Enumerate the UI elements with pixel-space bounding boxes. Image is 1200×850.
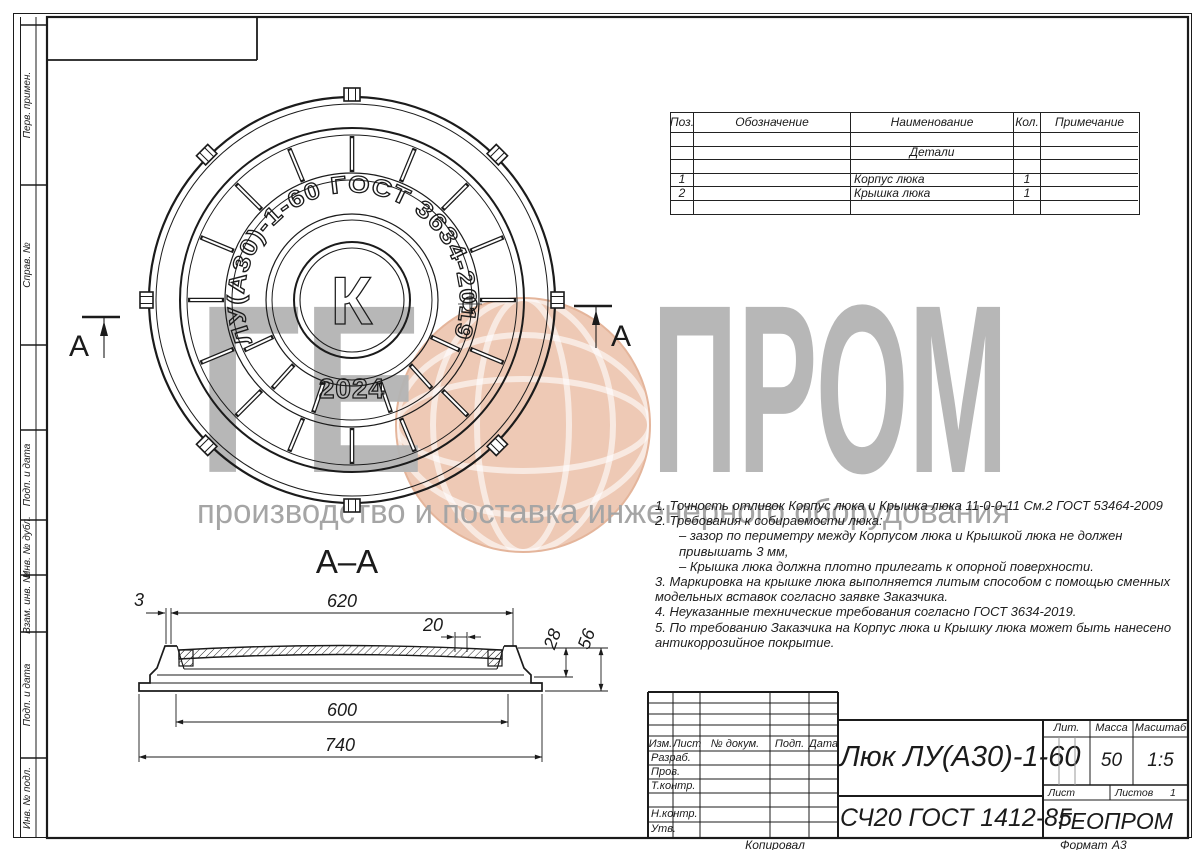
table-row: 1 <box>671 174 694 188</box>
parts-header-qty: Кол. <box>1014 113 1041 133</box>
cut-arrow-right <box>574 306 612 348</box>
note-line: 4. Неуказанные технические требования со… <box>655 604 1192 619</box>
note-line: 3. Маркировка на крышке люка выполняется… <box>655 574 1192 604</box>
technical-notes: 1. Точность отливок Корпус люка и Крышка… <box>655 498 1192 650</box>
dim-3: 3 <box>134 590 144 610</box>
dim-740: 740 <box>325 735 355 755</box>
part-name: Крышка люка <box>851 187 1014 201</box>
parts-header-note: Примечание <box>1041 113 1138 133</box>
dim-28: 28 <box>539 626 565 653</box>
table-row: 2 <box>671 187 694 201</box>
parts-header-pos: Поз. <box>671 113 694 133</box>
note-line: 2. Требования к собираемости люка: <box>655 513 1192 528</box>
dim-600: 600 <box>327 700 357 720</box>
dimension-lines <box>139 608 608 762</box>
part-qty: 1 <box>1014 187 1041 201</box>
drawing-sheet: ГЕ ПРОМ производство и поставка инженерн… <box>0 0 1200 850</box>
note-line: – Крышка люка должна плотно прилегать к … <box>655 559 1192 574</box>
cut-label-left: А <box>69 330 89 363</box>
note-line: – зазор по периметру между Корпусом люка… <box>655 528 1192 558</box>
parts-group-label: Детали <box>851 147 1014 161</box>
dim-620: 620 <box>327 591 357 611</box>
part-name: Корпус люка <box>851 174 1014 188</box>
part-qty: 1 <box>1014 174 1041 188</box>
cover-profile <box>179 646 502 667</box>
parts-header-designation: Обозначение <box>694 113 851 133</box>
note-line: 5. По требованию Заказчика на Корпус люк… <box>655 620 1192 650</box>
note-line: 1. Точность отливок Корпус люка и Крышка… <box>655 498 1192 513</box>
parts-table: Поз. Обозначение Наименование Кол. Приме… <box>670 112 1140 215</box>
dim-20: 20 <box>422 615 443 635</box>
section-title: А–А <box>316 543 378 580</box>
cut-label-right: А <box>611 320 631 353</box>
parts-header-name: Наименование <box>851 113 1014 133</box>
